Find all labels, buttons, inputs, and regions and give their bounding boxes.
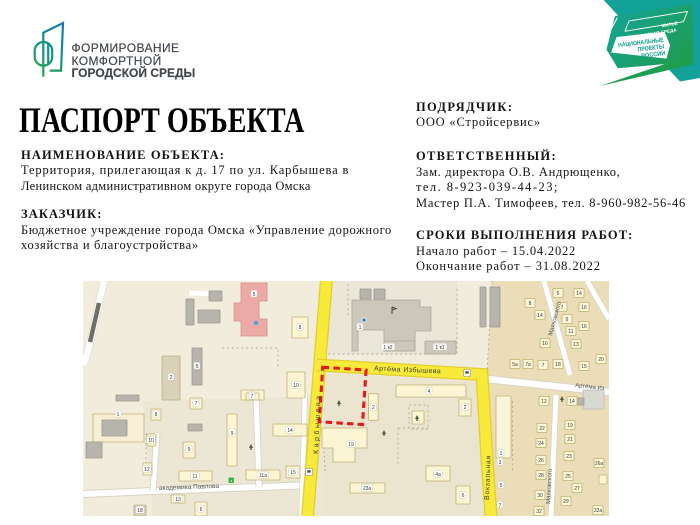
svg-text:29: 29 [563,499,569,505]
svg-text:8: 8 [155,412,158,418]
svg-text:27: 27 [574,486,580,492]
svg-text:6: 6 [200,507,203,513]
svg-text:з: з [230,478,232,483]
svg-text:23: 23 [566,454,572,460]
svg-text:28: 28 [538,473,544,479]
svg-text:15: 15 [290,470,296,476]
svg-text:11: 11 [568,329,573,335]
svg-text:20: 20 [598,357,604,363]
svg-text:9: 9 [188,447,191,453]
svg-text:16: 16 [581,305,587,311]
svg-text:12: 12 [541,399,547,405]
svg-text:26а: 26а [595,461,604,467]
svg-text:9: 9 [566,317,569,323]
svg-text:4: 4 [428,389,431,395]
svg-text:32: 32 [536,509,542,515]
svg-text:8: 8 [299,325,302,331]
svg-text:22: 22 [539,426,545,432]
svg-text:16: 16 [542,341,548,347]
svg-text:12: 12 [144,467,150,473]
svg-text:25: 25 [565,474,571,480]
svg-text:5: 5 [196,364,199,370]
svg-text:7а: 7а [525,362,531,368]
svg-text:8: 8 [529,301,532,307]
svg-text:30: 30 [537,493,543,499]
svg-text:3: 3 [499,460,502,466]
svg-text:16: 16 [581,324,587,330]
svg-text:2: 2 [170,375,173,381]
svg-text:19: 19 [348,442,354,448]
svg-text:21: 21 [567,437,573,443]
svg-text:1 к2: 1 к2 [383,345,392,351]
svg-text:10: 10 [293,383,299,389]
svg-text:32а: 32а [594,508,603,514]
svg-text:5а: 5а [512,362,518,368]
svg-text:11: 11 [192,474,197,480]
svg-text:11а: 11а [259,473,267,479]
svg-text:13: 13 [175,497,181,503]
svg-text:2: 2 [372,405,375,411]
svg-text:18: 18 [137,508,143,514]
svg-text:4а: 4а [435,472,441,478]
svg-text:1: 1 [359,325,362,331]
svg-text:23а: 23а [363,486,372,492]
svg-text:5: 5 [253,292,256,298]
svg-text:1: 1 [500,451,503,457]
svg-text:5: 5 [557,291,560,297]
svg-text:14: 14 [537,313,543,319]
svg-text:14: 14 [569,399,575,405]
svg-text:18: 18 [555,362,561,368]
svg-text:14: 14 [576,291,582,297]
svg-text:26: 26 [538,458,544,464]
svg-text:2: 2 [464,405,467,411]
svg-text:7: 7 [499,503,502,509]
svg-text:7: 7 [542,363,545,369]
svg-text:7: 7 [251,394,254,400]
svg-text:1: 1 [117,412,120,418]
svg-text:14: 14 [287,428,293,434]
svg-text:6: 6 [462,493,465,499]
svg-text:1 к1: 1 к1 [435,345,444,351]
svg-text:5: 5 [500,483,503,489]
svg-text:7: 7 [195,401,198,407]
svg-text:9: 9 [231,431,234,437]
svg-text:13: 13 [573,342,579,348]
svg-text:24: 24 [538,441,544,447]
svg-text:15: 15 [581,364,587,370]
svg-text:19: 19 [567,423,573,429]
svg-text:10: 10 [148,438,154,444]
